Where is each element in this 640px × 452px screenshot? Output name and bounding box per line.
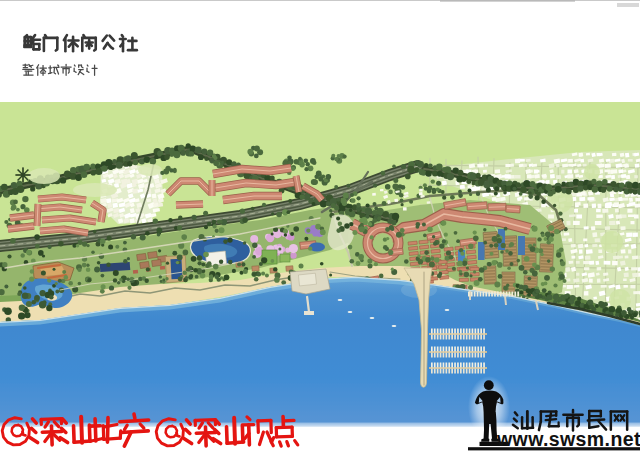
svg-text:www.swsm.net: www.swsm.net (496, 428, 640, 450)
